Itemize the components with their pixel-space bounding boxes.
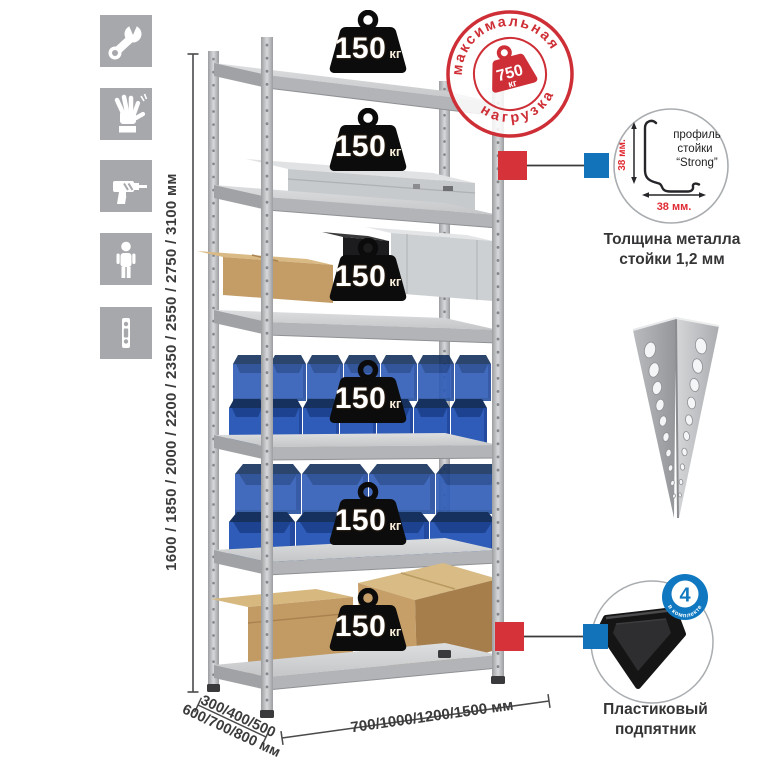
top-connector xyxy=(497,149,613,183)
product-diagram-page: 1600 / 1850 / 2000 / 2200 / 2350 / 2550 … xyxy=(0,0,765,765)
load-value: 150 xyxy=(335,130,387,163)
load-value: 150 xyxy=(335,382,387,415)
person-icon xyxy=(100,233,152,285)
shelf-load-badge-6: 150кг xyxy=(318,588,418,654)
shelf-3 xyxy=(214,310,498,343)
load-unit: кг xyxy=(389,46,401,61)
load-value: 150 xyxy=(335,504,387,537)
bottom-connector xyxy=(494,620,612,654)
load-unit: кг xyxy=(389,144,401,159)
height-dimension-line xyxy=(186,48,200,698)
foot-caption-line1: Пластиковый xyxy=(578,700,733,720)
gloves-icon xyxy=(100,88,152,140)
rack-post-icon xyxy=(100,307,152,359)
red-marker xyxy=(498,151,527,180)
profile-detail: 38 мм. 38 мм. профиль стойки “Strong” xyxy=(596,98,748,238)
blue-marker xyxy=(583,624,608,649)
red-marker xyxy=(495,622,524,651)
load-value: 150 xyxy=(335,610,387,643)
load-unit: кг xyxy=(389,624,401,639)
corner-post-photo xyxy=(594,306,762,528)
shelf-load-badge-2: 150кг xyxy=(318,108,418,174)
foot-caption: Пластиковый подпятник xyxy=(578,700,733,740)
drill-icon xyxy=(100,160,152,212)
quantity-badge-value: 4 xyxy=(679,585,691,607)
shelf-4 xyxy=(214,433,498,460)
max-load-stamp: максимальная нагрузка 750 кг xyxy=(442,6,578,142)
rack-foot xyxy=(438,650,451,658)
profile-dim-horizontal: 38 мм. xyxy=(657,201,692,213)
profile-caption: Толщина металла стойки 1,2 мм xyxy=(588,230,756,270)
profile-label-2: стойки xyxy=(677,143,712,155)
profile-caption-line2: стойки 1,2 мм xyxy=(588,250,756,270)
profile-dim-vertical: 38 мм. xyxy=(617,139,628,171)
load-unit: кг xyxy=(389,274,401,289)
height-dimension-label: 1600 / 1850 / 2000 / 2200 / 2350 / 2550 … xyxy=(163,27,185,717)
wrench-icon xyxy=(100,15,152,67)
profile-label-3: “Strong” xyxy=(676,157,718,169)
blue-marker xyxy=(584,153,609,178)
profile-caption-line1: Толщина металла xyxy=(588,230,756,250)
quantity-badge: 4 в комплекте xyxy=(660,572,710,622)
load-value: 150 xyxy=(335,260,387,293)
shelf-load-badge-4: 150кг xyxy=(318,360,418,426)
shelf-load-badge-3: 150кг xyxy=(318,238,418,304)
load-value: 150 xyxy=(335,32,387,65)
load-unit: кг xyxy=(389,396,401,411)
rack-foot xyxy=(207,684,220,692)
shelf-load-badge-1: 150кг xyxy=(318,10,418,76)
profile-label-1: профиль xyxy=(673,129,721,141)
rack-foot xyxy=(491,676,505,684)
shelf-load-badge-5: 150кг xyxy=(318,482,418,548)
load-unit: кг xyxy=(389,518,401,533)
foot-caption-line2: подпятник xyxy=(578,720,733,740)
